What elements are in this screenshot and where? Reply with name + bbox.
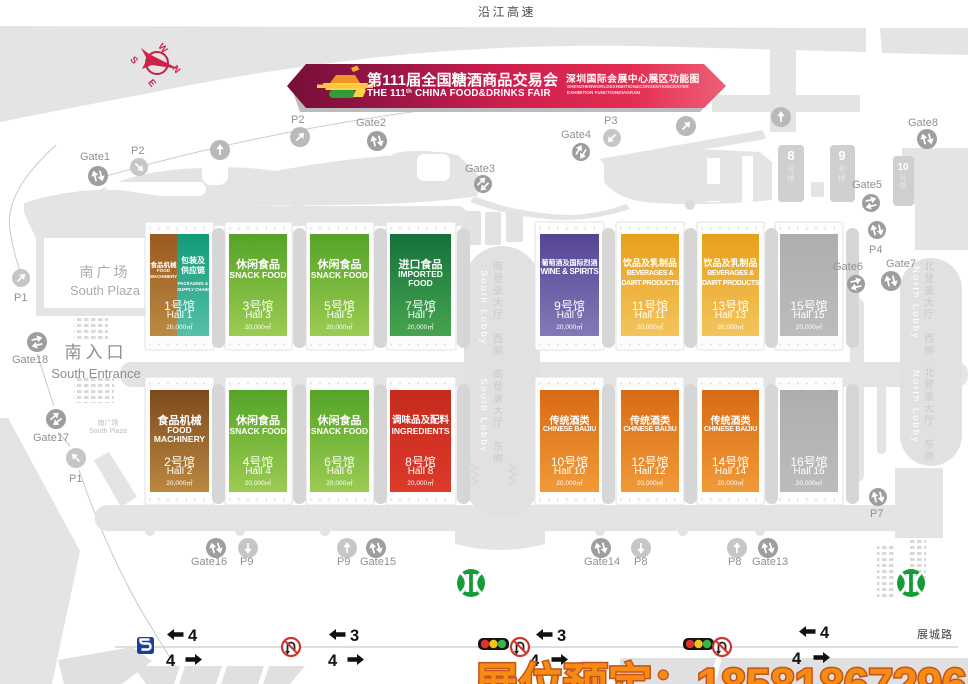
svg-text:4: 4 <box>820 624 830 642</box>
svg-text:4: 4 <box>328 652 338 670</box>
svg-text:4: 4 <box>166 652 176 670</box>
svg-text:3: 3 <box>350 627 359 645</box>
svg-text:4: 4 <box>188 627 198 645</box>
svg-text:3: 3 <box>557 627 566 645</box>
